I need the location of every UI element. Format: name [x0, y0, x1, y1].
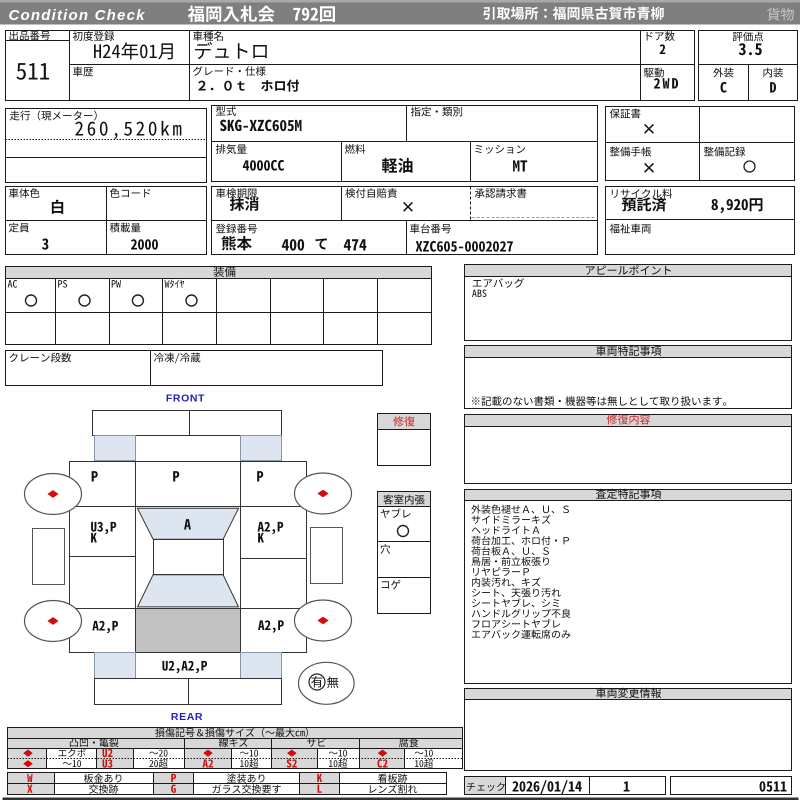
svg-text:FRONT: FRONT: [166, 393, 205, 405]
svg-text:Condition Check: Condition Check: [9, 7, 146, 24]
svg-text:REAR: REAR: [171, 711, 203, 723]
